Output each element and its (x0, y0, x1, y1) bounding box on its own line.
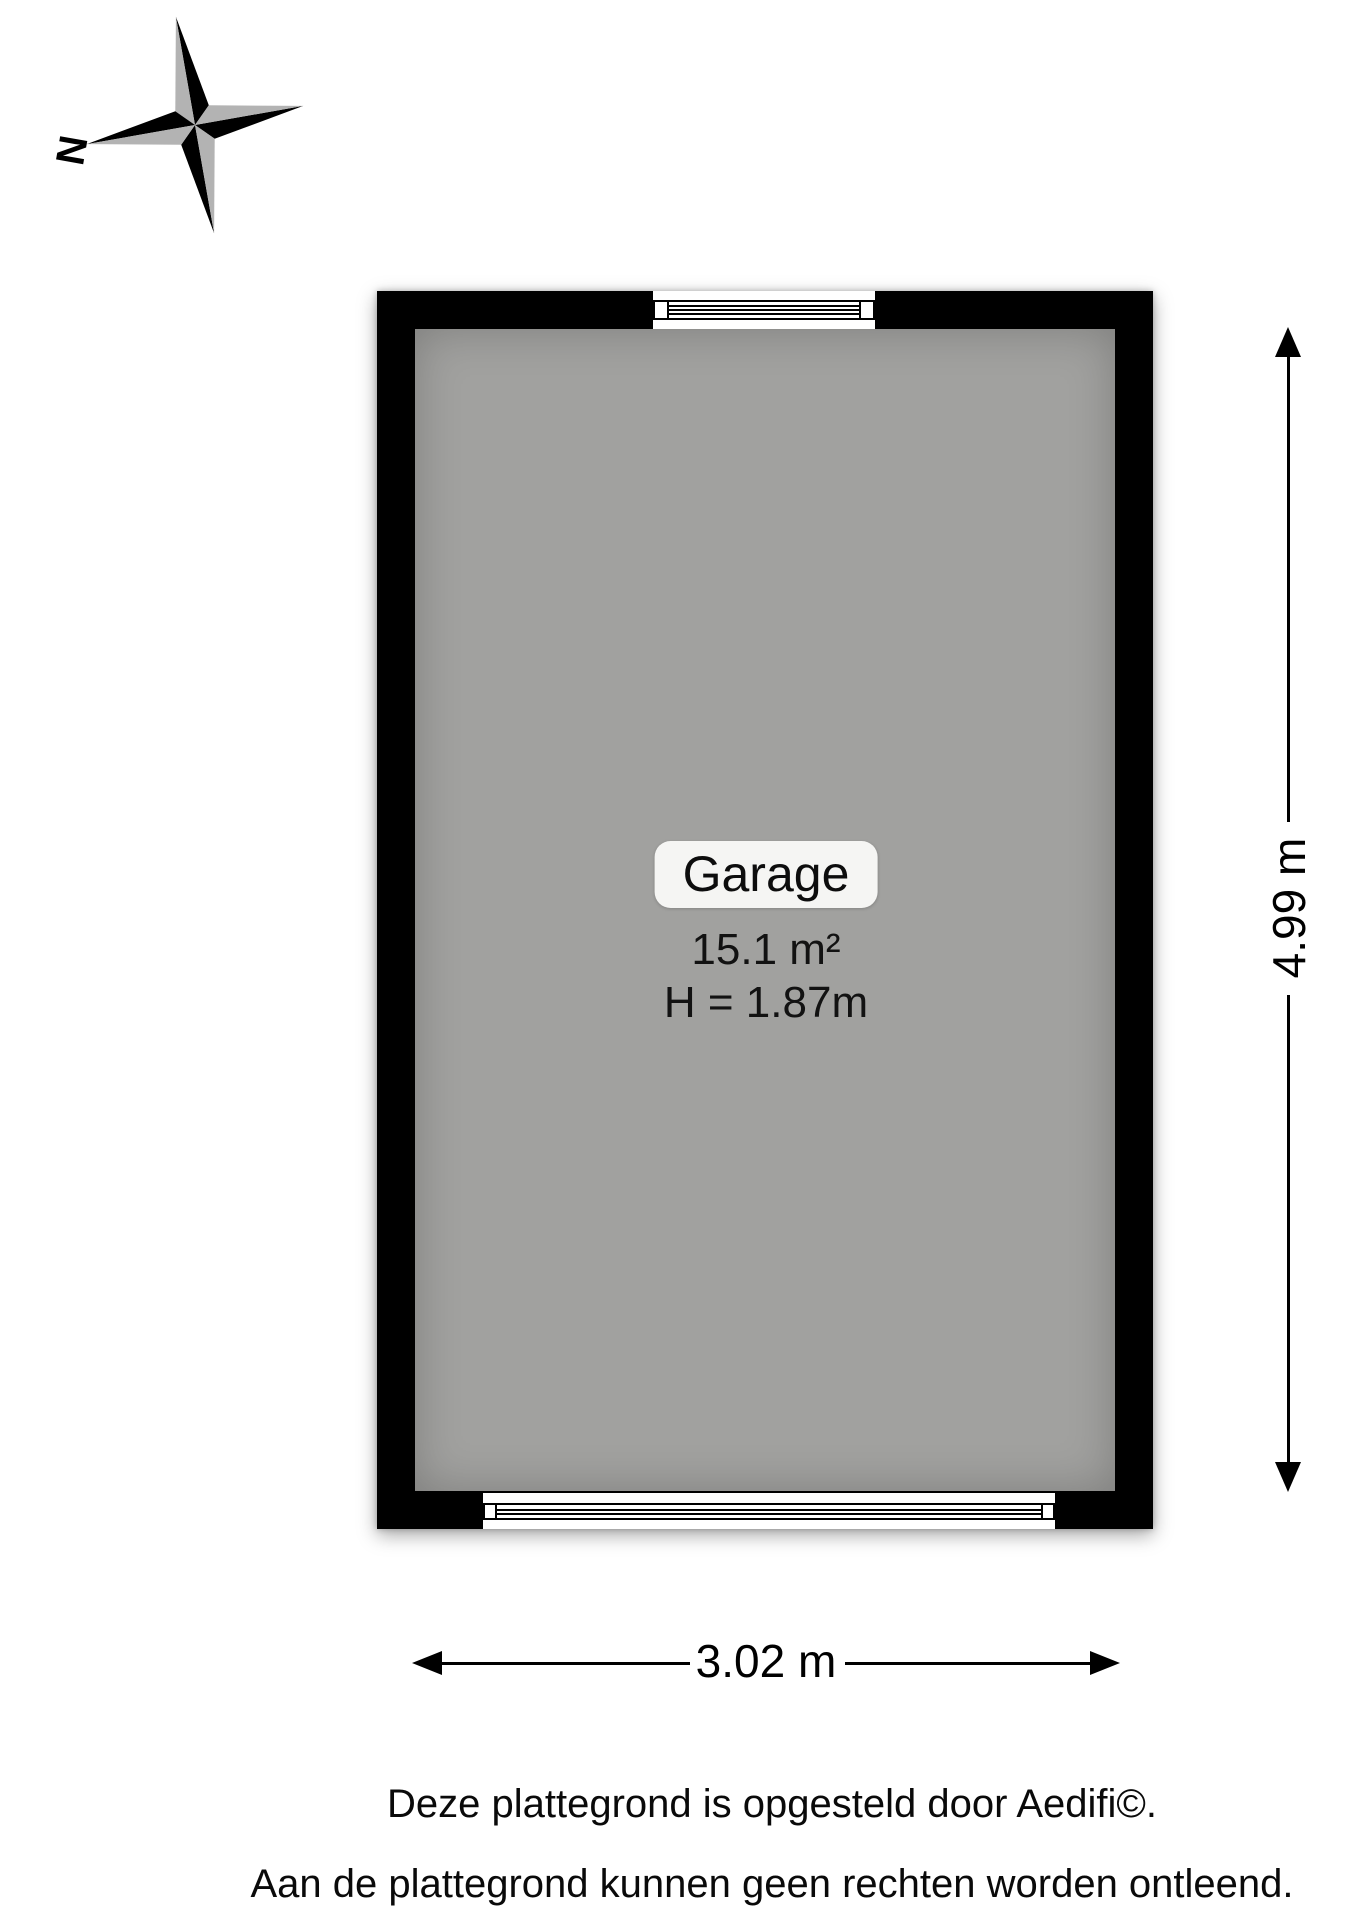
footer-attribution: Deze plattegrond is opgesteld door Aedif… (387, 1782, 1157, 1827)
room-name-label: Garage (655, 841, 878, 908)
dimension-line (438, 1662, 690, 1665)
north-label: N (47, 132, 95, 168)
horizontal-dimension-label: 3.02 m (696, 1634, 837, 1688)
window-post-left (653, 300, 669, 320)
garage-door-post-right (1041, 1503, 1055, 1520)
window (653, 291, 875, 329)
room-ceiling-height-label: H = 1.87m (664, 978, 868, 1028)
garage-door-frame (483, 1503, 1055, 1520)
dimension-line (845, 1662, 1093, 1665)
vertical-dimension-label: 4.99 m (1262, 838, 1316, 979)
room-area-label: 15.1 m² (691, 925, 840, 975)
dimension-arrow-down-icon (1275, 1462, 1301, 1492)
garage-door (483, 1493, 1055, 1529)
window-frame (653, 300, 875, 320)
footer-disclaimer: Aan de plattegrond kunnen geen rechten w… (250, 1862, 1293, 1907)
dimension-line (1287, 340, 1290, 822)
garage-door-post-left (483, 1503, 497, 1520)
floor-plan (377, 291, 1153, 1529)
window-post-right (859, 300, 875, 320)
garage-room-floor (415, 329, 1115, 1491)
dimension-arrow-right-icon (1090, 1651, 1120, 1675)
compass-rose-icon: N (45, 10, 345, 250)
dimension-line (1287, 995, 1290, 1465)
